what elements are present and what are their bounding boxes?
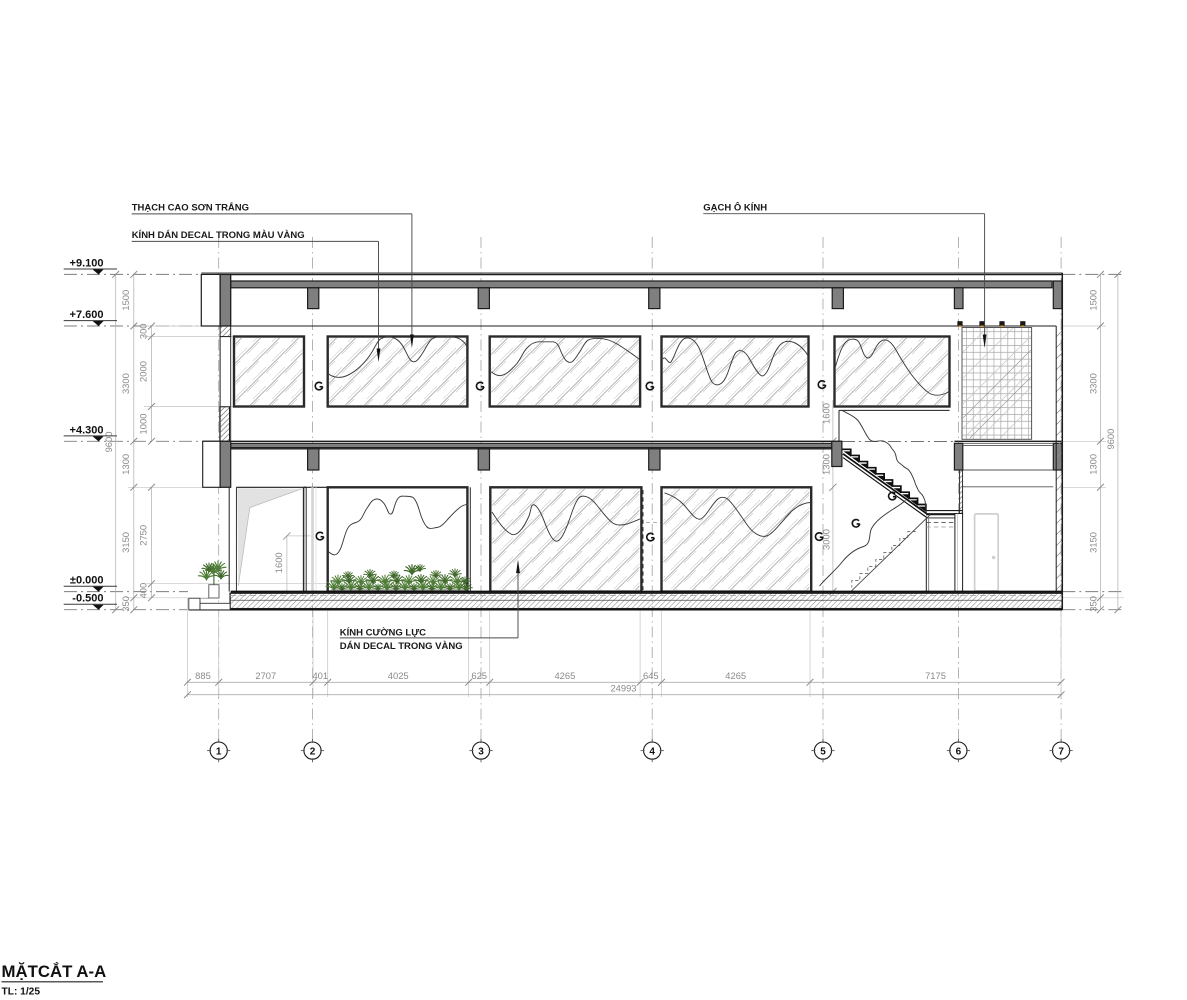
svg-text:1600: 1600	[820, 403, 831, 424]
svg-text:4265: 4265	[554, 670, 575, 681]
svg-text:400: 400	[138, 583, 149, 599]
svg-text:645: 645	[643, 670, 659, 681]
svg-text:+7.600: +7.600	[70, 309, 104, 321]
svg-text:1500: 1500	[1088, 290, 1099, 311]
svg-text:2: 2	[310, 746, 316, 757]
svg-text:MẶTCẮT A-A: MẶTCẮT A-A	[2, 962, 107, 981]
svg-text:KÍNH CƯỜNG LỰC: KÍNH CƯỜNG LỰC	[340, 626, 426, 638]
svg-text:TL: 1/25: TL: 1/25	[2, 987, 41, 998]
svg-text:885: 885	[195, 670, 211, 681]
svg-text:350: 350	[1088, 596, 1099, 612]
svg-text:3300: 3300	[120, 373, 131, 394]
svg-text:7175: 7175	[925, 670, 946, 681]
svg-text:5: 5	[820, 746, 826, 757]
svg-text:3: 3	[478, 746, 484, 757]
svg-text:9600: 9600	[1105, 429, 1116, 450]
svg-text:+9.100: +9.100	[70, 257, 104, 269]
svg-text:2000: 2000	[138, 361, 149, 382]
svg-text:350: 350	[120, 596, 131, 612]
svg-text:1500: 1500	[120, 290, 131, 311]
svg-text:6: 6	[956, 746, 962, 757]
svg-text:9600: 9600	[103, 432, 114, 453]
svg-text:4: 4	[649, 746, 655, 757]
svg-text:1300: 1300	[1088, 454, 1099, 475]
svg-text:1: 1	[216, 746, 222, 757]
svg-text:24993: 24993	[610, 683, 636, 694]
svg-text:401: 401	[312, 670, 328, 681]
svg-text:3150: 3150	[1088, 532, 1099, 553]
svg-text:-0.500: -0.500	[72, 593, 103, 605]
svg-text:3150: 3150	[120, 532, 131, 553]
svg-text:625: 625	[471, 670, 487, 681]
svg-text:2707: 2707	[255, 670, 276, 681]
svg-text:7: 7	[1058, 746, 1064, 757]
svg-text:GẠCH Ô KÍNH: GẠCH Ô KÍNH	[703, 202, 767, 214]
svg-text:300: 300	[138, 323, 149, 339]
svg-text:2750: 2750	[138, 525, 149, 546]
svg-text:KÍNH DÁN DECAL TRONG MÀU VÀNG: KÍNH DÁN DECAL TRONG MÀU VÀNG	[132, 230, 305, 241]
svg-text:±0.000: ±0.000	[70, 575, 104, 587]
svg-text:4025: 4025	[388, 670, 409, 681]
svg-text:1300: 1300	[120, 454, 131, 475]
svg-text:DÁN DECAL TRONG VÀNG: DÁN DECAL TRONG VÀNG	[340, 641, 463, 652]
svg-text:THẠCH CAO SƠN TRẮNG: THẠCH CAO SƠN TRẮNG	[132, 203, 249, 214]
svg-text:4265: 4265	[725, 670, 746, 681]
svg-text:3300: 3300	[1088, 373, 1099, 394]
svg-text:+4.300: +4.300	[70, 424, 104, 436]
svg-text:1300: 1300	[820, 454, 831, 475]
svg-text:1600: 1600	[273, 552, 284, 573]
svg-text:1000: 1000	[138, 414, 149, 435]
